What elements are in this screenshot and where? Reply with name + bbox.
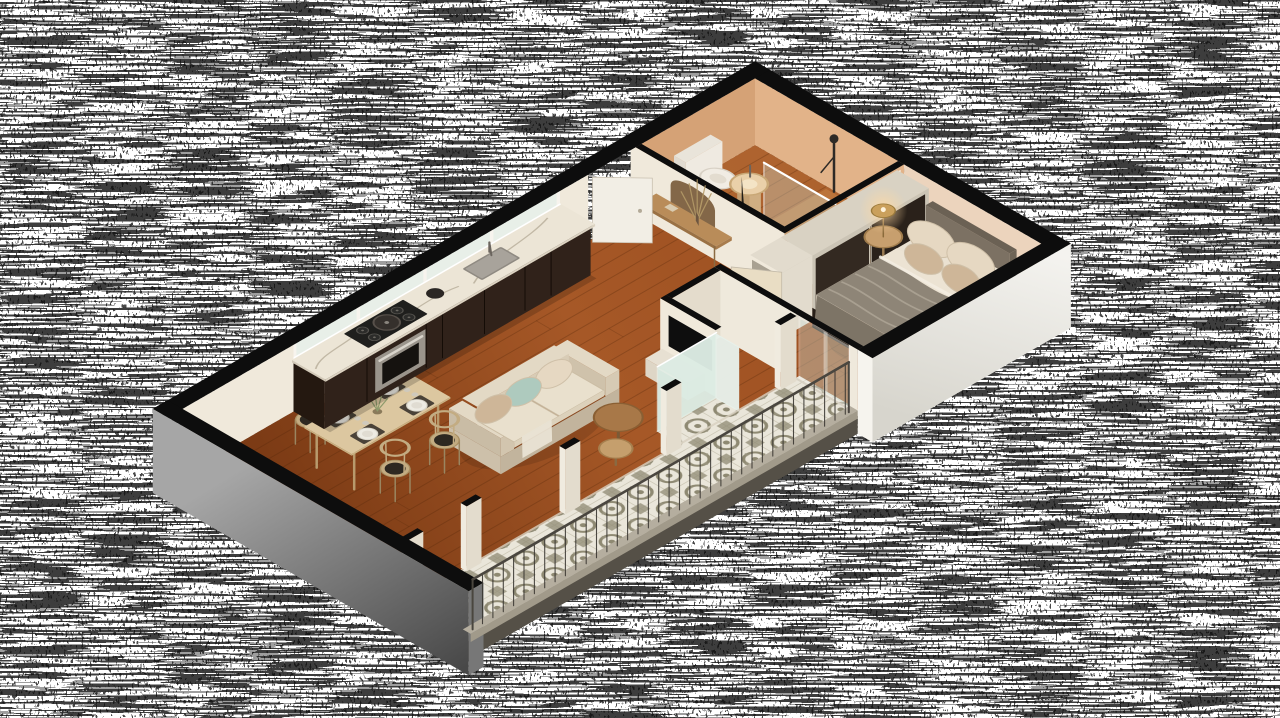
chair-spindle [404, 454, 405, 474]
chair-spindle [386, 444, 387, 464]
floor-plan-render [0, 0, 1280, 718]
door-pier-side [565, 441, 580, 515]
door-pier [775, 322, 781, 390]
screenshot-stage [0, 0, 1280, 718]
shower-head [830, 134, 839, 143]
lamp-bulb [881, 207, 886, 212]
utility-niche-wall [716, 333, 740, 412]
door-pier [661, 388, 667, 456]
door-knob [638, 209, 642, 213]
chair-spindle [453, 426, 454, 446]
door-pier [461, 503, 467, 571]
door-pier-side [467, 498, 482, 572]
bedroom-exterior-wall-end [858, 350, 873, 443]
door-pier-side [667, 382, 682, 456]
chair-spindle [435, 415, 436, 435]
door-pier-side [781, 316, 797, 390]
entrance-door [593, 177, 653, 243]
door-pier [560, 446, 566, 514]
